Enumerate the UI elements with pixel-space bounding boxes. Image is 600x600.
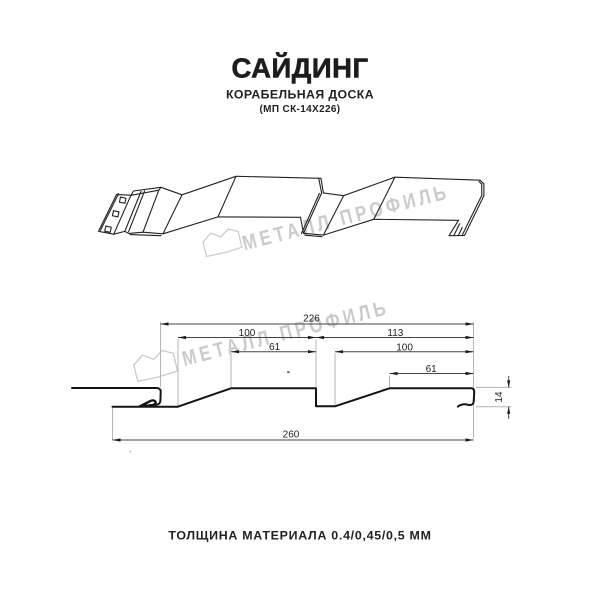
svg-text:61: 61 — [426, 364, 438, 375]
svg-text:260: 260 — [283, 430, 300, 441]
svg-text:ТОЛЩИНА МАТЕРИАЛА 0.4/0,45/0,5: ТОЛЩИНА МАТЕРИАЛА 0.4/0,45/0,5 ММ — [168, 529, 431, 543]
svg-text:100: 100 — [396, 343, 413, 354]
svg-text:226: 226 — [303, 314, 320, 325]
svg-text:14: 14 — [494, 391, 505, 403]
svg-text:100: 100 — [239, 328, 256, 339]
svg-text:САЙДИНГ: САЙДИНГ — [231, 53, 368, 84]
svg-text:КОРАБЕЛЬНАЯ ДОСКА: КОРАБЕЛЬНАЯ ДОСКА — [226, 88, 374, 102]
svg-text:(МП СК-14Х226): (МП СК-14Х226) — [260, 104, 341, 115]
svg-text:113: 113 — [387, 328, 403, 339]
svg-text:61: 61 — [269, 342, 281, 353]
